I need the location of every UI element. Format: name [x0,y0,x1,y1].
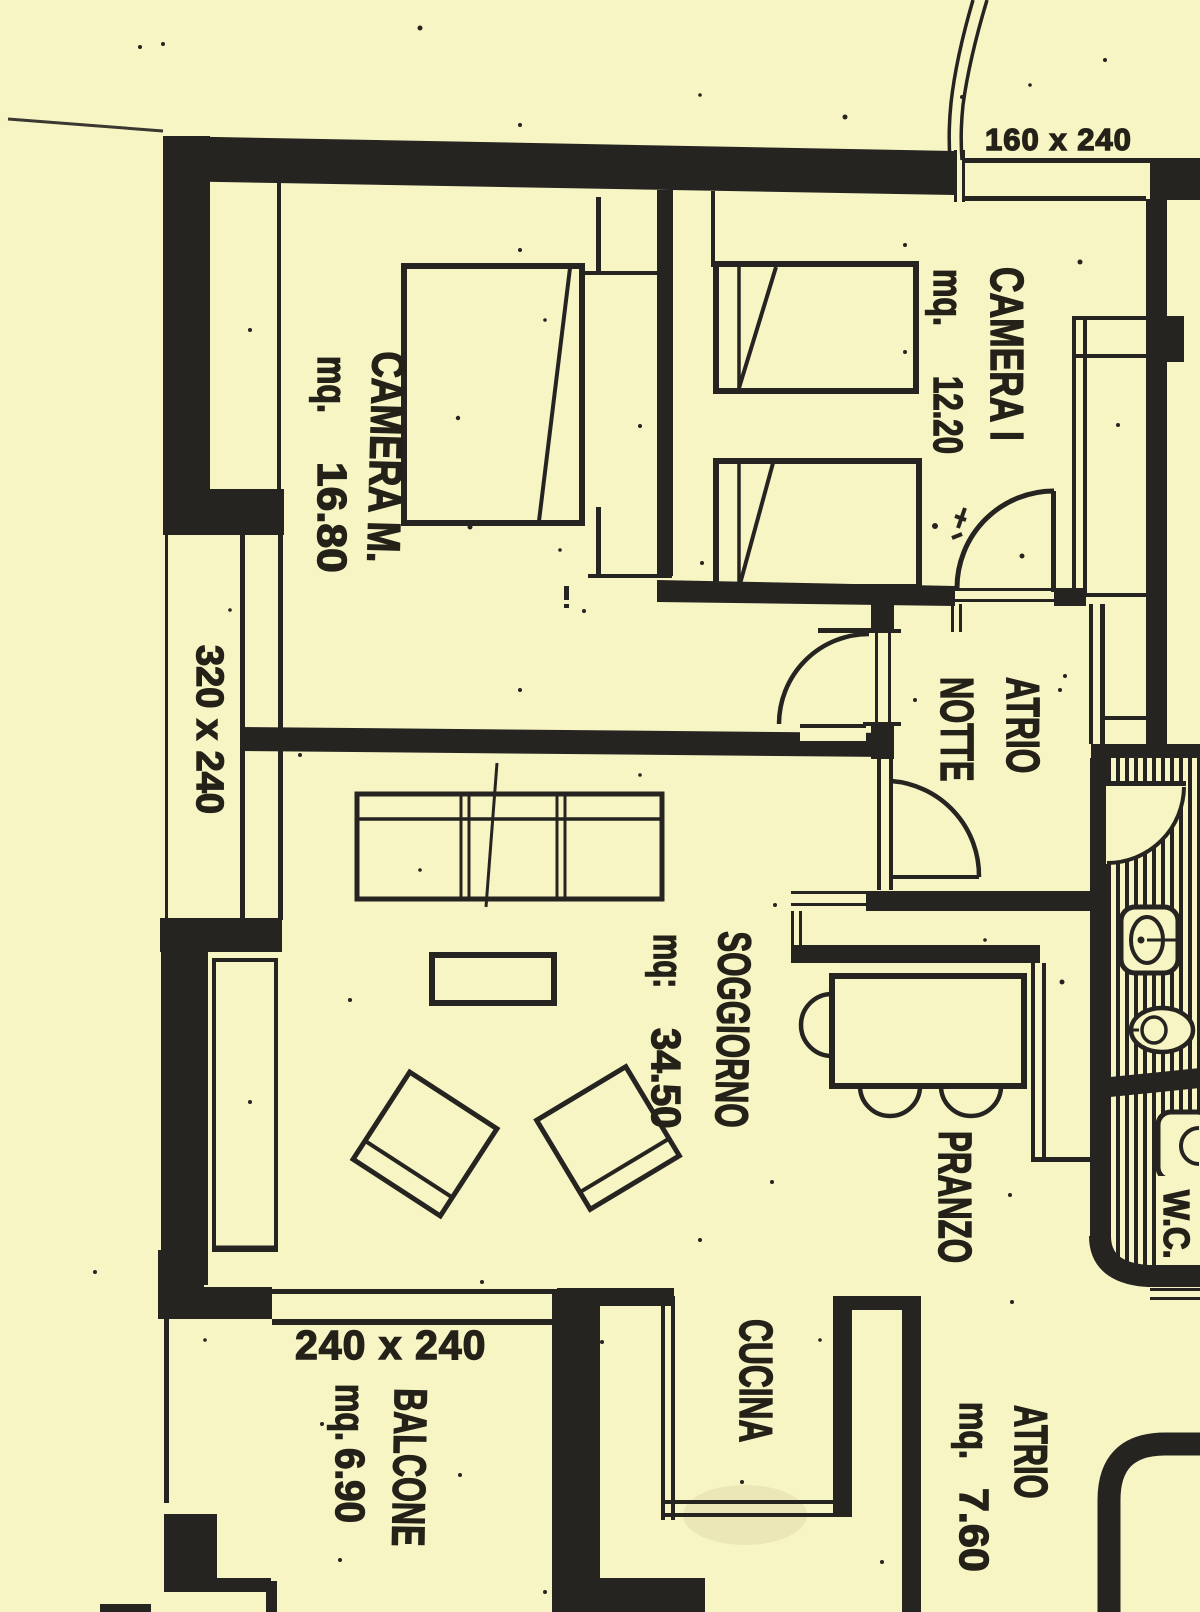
svg-text:CAMERA I: CAMERA I [981,267,1033,441]
svg-text:7.60: 7.60 [951,1488,997,1572]
svg-text:CUCINA: CUCINA [730,1319,781,1442]
svg-text:BALCONE: BALCONE [382,1388,436,1547]
svg-text:16.80: 16.80 [308,462,354,573]
svg-text:240 x 240: 240 x 240 [295,1322,486,1368]
svg-text:mq.: mq. [327,1384,373,1441]
svg-text:PRANZO: PRANZO [928,1131,979,1263]
svg-text:mq.: mq. [309,356,355,413]
svg-text:34.50: 34.50 [643,1028,689,1129]
svg-text:12.20: 12.20 [925,376,971,454]
svg-text:ATRIO: ATRIO [997,677,1048,773]
svg-text:SOGGIORNO: SOGGIORNO [705,931,760,1128]
svg-text:mq.: mq. [951,1402,997,1459]
svg-text:160 x 240: 160 x 240 [985,122,1132,157]
svg-text:mq.: mq. [925,269,971,326]
svg-text:320 x 240: 320 x 240 [188,645,230,814]
svg-text:NOTTE: NOTTE [930,677,981,781]
svg-text:CAMERA M.: CAMERA M. [358,351,415,563]
svg-text:W.C.: W.C. [1156,1190,1196,1259]
svg-text:6.90: 6.90 [327,1448,372,1523]
svg-text:ATRIO: ATRIO [1004,1405,1055,1499]
svg-text:mq:: mq: [645,934,691,988]
